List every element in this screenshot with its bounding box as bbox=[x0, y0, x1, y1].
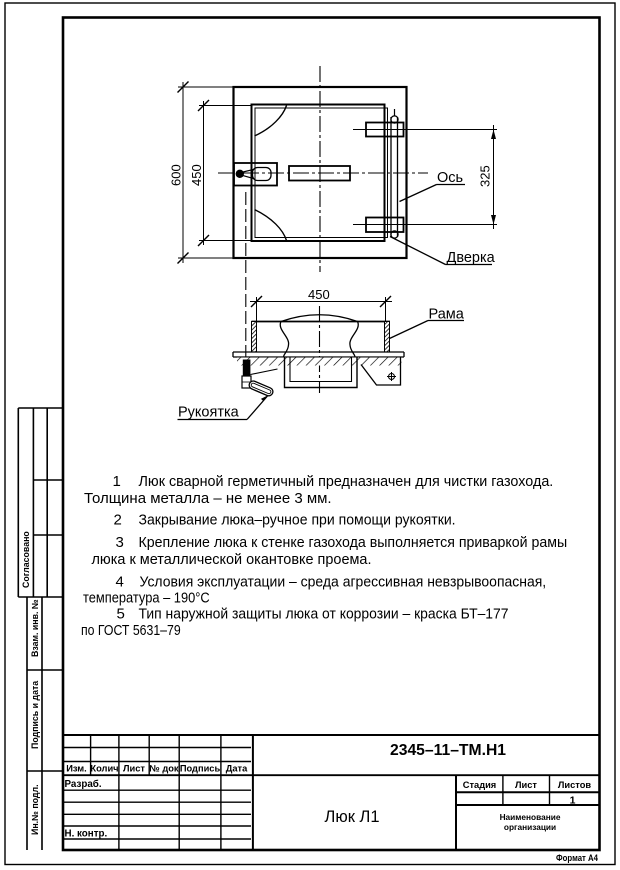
svg-text:Рукоятка: Рукоятка bbox=[178, 405, 240, 421]
svg-text:Н. контр.: Н. контр. bbox=[65, 829, 108, 840]
svg-text:1: 1 bbox=[113, 473, 121, 490]
svg-text:600: 600 bbox=[169, 164, 184, 186]
svg-text:3: 3 bbox=[116, 534, 124, 551]
svg-text:Наименование: Наименование bbox=[500, 812, 561, 822]
svg-text:4: 4 bbox=[116, 574, 124, 591]
svg-text:организации: организации bbox=[504, 822, 556, 832]
svg-text:Ин.№ подл.: Ин.№ подл. bbox=[30, 784, 40, 835]
svg-text:Толщина металла – не менее 3 м: Толщина металла – не менее 3 мм. bbox=[84, 490, 332, 507]
svg-text:Люк сварной герметичный предна: Люк сварной герметичный предназначен для… bbox=[139, 473, 554, 490]
svg-text:Дверка: Дверка bbox=[447, 250, 496, 266]
svg-text:по ГОСТ 5631–79: по ГОСТ 5631–79 bbox=[81, 622, 181, 639]
svg-text:Ось: Ось bbox=[437, 170, 463, 186]
svg-text:2345–11–ТМ.Н1: 2345–11–ТМ.Н1 bbox=[390, 742, 506, 759]
svg-text:Тип наружной защиты люка от ко: Тип наружной защиты люка от коррозии – к… bbox=[139, 606, 509, 623]
svg-text:№ док: № док bbox=[149, 764, 179, 774]
svg-text:325: 325 bbox=[478, 165, 493, 187]
svg-text:температура – 190°С: температура – 190°С bbox=[83, 590, 210, 607]
svg-text:Лист: Лист bbox=[123, 764, 145, 774]
svg-text:Взам. инв. №: Взам. инв. № bbox=[30, 599, 40, 657]
svg-text:Лист: Лист bbox=[515, 780, 537, 790]
svg-text:Дата: Дата bbox=[226, 764, 248, 774]
svg-text:5: 5 bbox=[117, 606, 125, 623]
svg-text:Листов: Листов bbox=[558, 780, 592, 790]
svg-text:450: 450 bbox=[189, 164, 204, 186]
svg-text:Крепление люка к стенке газохо: Крепление люка к стенке газохода выполня… bbox=[139, 534, 568, 551]
svg-text:Люк Л1: Люк Л1 bbox=[324, 808, 379, 826]
svg-text:Формат А4: Формат А4 bbox=[556, 853, 598, 863]
svg-text:Условия эксплуатации – среда а: Условия эксплуатации – среда агрессивная… bbox=[140, 574, 547, 591]
svg-text:Разраб.: Разраб. bbox=[65, 779, 102, 790]
svg-text:Подпись и дата: Подпись и дата bbox=[30, 681, 40, 749]
svg-text:Закрывание люка–ручное при пом: Закрывание люка–ручное при помощи рукоят… bbox=[139, 512, 456, 529]
svg-text:Подпись: Подпись bbox=[180, 764, 221, 774]
svg-text:450: 450 bbox=[308, 287, 330, 302]
svg-text:люка к металлической окантовке: люка к металлической окантовке проема. bbox=[92, 551, 372, 568]
svg-text:Стадия: Стадия bbox=[463, 780, 496, 790]
svg-text:1: 1 bbox=[570, 795, 576, 807]
svg-text:Колич: Колич bbox=[90, 764, 118, 774]
svg-text:2: 2 bbox=[114, 512, 122, 529]
svg-text:Изм.: Изм. bbox=[66, 764, 87, 774]
svg-text:Согласовано: Согласовано bbox=[21, 531, 31, 588]
